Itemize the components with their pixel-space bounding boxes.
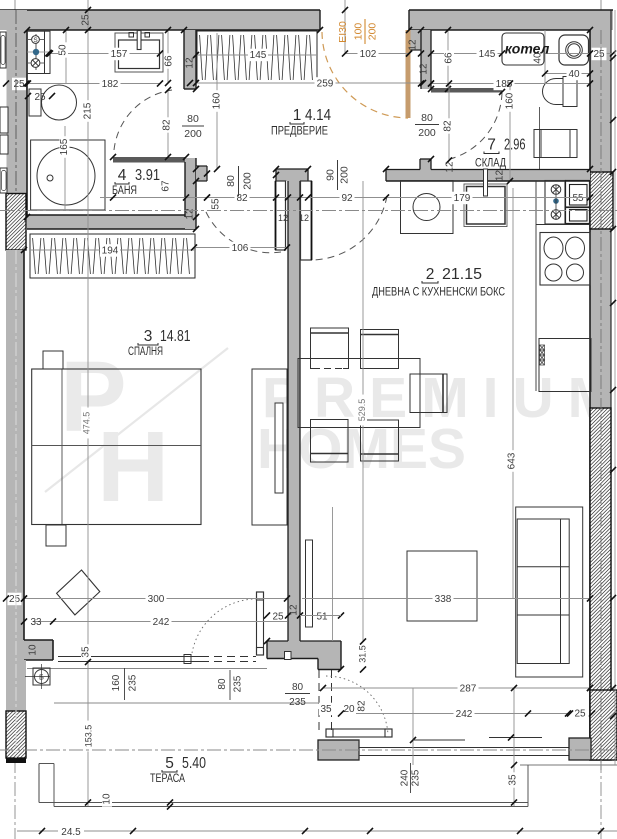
svg-text:2.96: 2.96 [504,137,526,154]
svg-text:200: 200 [338,166,350,184]
svg-text:80: 80 [421,112,433,124]
svg-text:153.5: 153.5 [83,725,93,748]
svg-text:EI30: EI30 [337,21,349,43]
svg-text:200: 200 [366,23,378,41]
svg-text:338: 338 [435,594,452,605]
svg-text:БАНЯ: БАНЯ [112,185,137,197]
svg-text:474.5: 474.5 [81,412,91,435]
svg-text:160: 160 [212,92,223,109]
svg-text:235: 235 [289,697,306,708]
svg-text:H: H [97,411,169,523]
svg-text:12: 12 [278,213,288,223]
svg-text:25: 25 [34,92,46,103]
svg-text:25: 25 [574,709,586,720]
svg-text:ДНЕВНА С КУХНЕНСКИ БОКС: ДНЕВНА С КУХНЕНСКИ БОКС [372,287,505,299]
svg-text:200: 200 [241,172,253,190]
svg-text:1: 1 [293,107,302,124]
svg-text:S: S [33,37,38,44]
svg-text:106: 106 [232,243,249,254]
svg-text:25: 25 [81,14,92,26]
svg-text:82: 82 [357,700,368,712]
svg-text:12: 12 [185,57,196,69]
svg-text:300: 300 [148,594,165,605]
svg-text:35: 35 [320,704,332,715]
svg-text:2: 2 [426,266,435,283]
svg-text:215: 215 [83,102,94,119]
svg-text:55: 55 [211,198,222,210]
svg-text:12: 12 [299,213,309,223]
svg-text:31.5: 31.5 [357,645,367,663]
svg-text:12: 12 [185,208,196,220]
svg-text:160: 160 [505,92,516,109]
svg-text:25: 25 [593,49,605,60]
svg-text:194: 194 [102,246,119,257]
svg-text:145: 145 [250,50,267,61]
svg-text:182: 182 [102,79,119,90]
svg-text:66: 66 [444,52,455,64]
svg-text:4: 4 [118,167,127,184]
svg-text:50: 50 [58,44,69,56]
svg-text:33: 33 [30,617,42,628]
svg-text:100: 100 [352,23,364,41]
svg-text:3.91: 3.91 [135,167,160,184]
svg-text:145: 145 [479,49,496,60]
svg-text:235: 235 [411,769,422,786]
svg-text:179: 179 [454,193,471,204]
svg-text:51: 51 [316,612,328,623]
svg-text:10: 10 [28,644,39,656]
svg-text:102: 102 [360,49,377,60]
svg-text:90: 90 [324,169,336,181]
svg-text:240: 240 [400,769,411,786]
svg-text:ПРЕДВЕРИЕ: ПРЕДВЕРИЕ [271,126,328,138]
svg-text:82: 82 [162,119,173,131]
svg-text:4.14: 4.14 [305,107,331,124]
svg-text:12: 12 [289,604,300,616]
svg-text:165: 165 [59,138,70,155]
svg-text:92: 92 [341,193,353,204]
svg-text:259: 259 [317,79,334,90]
svg-text:5: 5 [165,755,174,772]
svg-text:20: 20 [343,704,355,715]
svg-text:14.81: 14.81 [160,328,191,345]
svg-text:12: 12 [495,170,506,182]
svg-text:24.5: 24.5 [61,827,81,838]
svg-text:55: 55 [572,193,584,204]
svg-text:21.15: 21.15 [442,266,482,283]
svg-text:80: 80 [292,682,304,693]
svg-text:40: 40 [568,69,580,80]
svg-text:80: 80 [217,678,228,690]
svg-text:10: 10 [102,793,113,805]
svg-text:157: 157 [111,49,128,60]
svg-text:котел: котел [505,41,550,57]
svg-text:82: 82 [443,120,454,132]
svg-text:ТЕРАСА: ТЕРАСА [150,773,185,785]
svg-text:80: 80 [187,113,199,125]
svg-text:7: 7 [487,137,496,154]
svg-text:235: 235 [128,674,139,691]
svg-text:67: 67 [161,180,172,192]
svg-text:35: 35 [508,774,519,786]
svg-text:235: 235 [233,675,244,692]
svg-text:287: 287 [460,684,477,695]
svg-text:66: 66 [164,55,175,67]
svg-text:3: 3 [144,328,153,345]
svg-text:35: 35 [81,646,92,658]
svg-text:12: 12 [419,63,430,75]
svg-text:529.5: 529.5 [357,399,367,422]
svg-text:5.40: 5.40 [182,755,206,772]
svg-text:80: 80 [225,175,237,187]
svg-text:643: 643 [507,452,518,469]
svg-text:25: 25 [9,594,21,605]
svg-text:200: 200 [184,128,202,140]
svg-text:12: 12 [408,39,419,51]
svg-text:12: 12 [445,161,456,173]
svg-text:200: 200 [418,127,436,139]
svg-text:25: 25 [13,79,25,90]
svg-text:СКЛАД: СКЛАД [475,158,506,170]
svg-text:242: 242 [153,617,170,628]
svg-text:160: 160 [111,674,122,691]
svg-text:25: 25 [272,612,284,623]
svg-text:242: 242 [456,709,473,720]
svg-text:СПАЛНЯ: СПАЛНЯ [128,346,163,358]
